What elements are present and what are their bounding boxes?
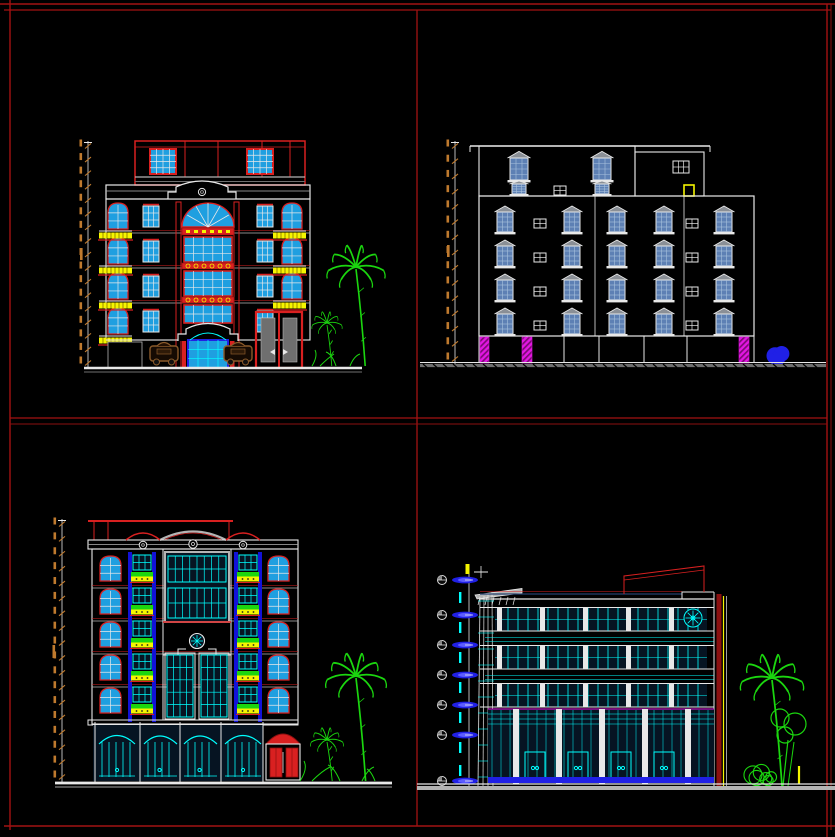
elevation-drawing-classical-front[interactable] xyxy=(80,140,386,373)
cad-model-space-canvas[interactable] xyxy=(0,0,835,837)
drawing-sheet xyxy=(0,0,835,837)
elevation-drawing-front-scheme2[interactable] xyxy=(53,518,393,788)
elevation-drawing-side[interactable] xyxy=(420,140,826,368)
elevation-drawing-modern-office[interactable] xyxy=(417,564,835,788)
